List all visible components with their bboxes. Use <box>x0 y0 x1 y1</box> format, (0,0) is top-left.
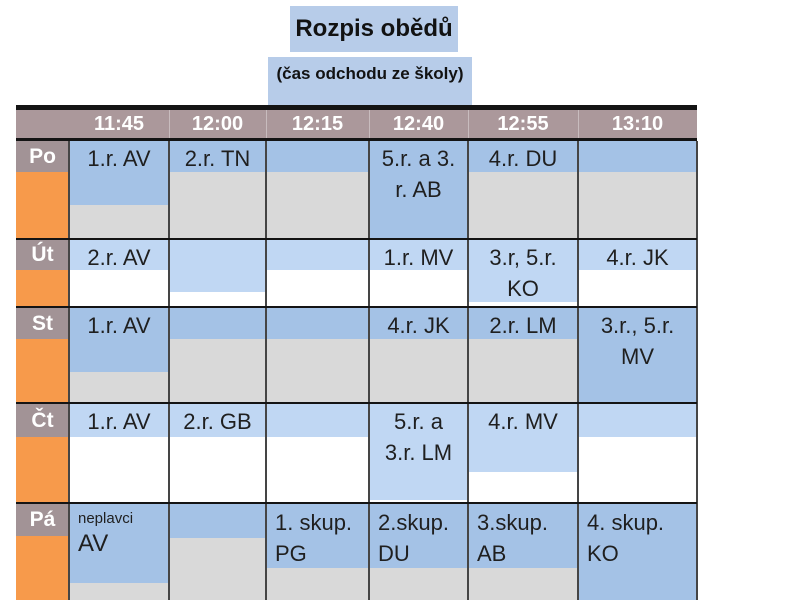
day-label-Út: Út <box>16 240 69 270</box>
cell-line: 1.r. AV <box>69 310 169 341</box>
schedule-cell: 2.r. GB <box>169 404 266 502</box>
column-border <box>467 141 469 600</box>
schedule-cell: 4.r. JK <box>578 240 697 306</box>
cell-line: 4.r. JK <box>578 242 697 273</box>
cell-time-band: 2.r. LM <box>468 308 578 339</box>
cell-time-band: 4.r. MV <box>468 404 578 472</box>
cell-line: KO <box>587 538 697 569</box>
cell-time-band: 3.r., 5.r.MV <box>578 308 697 402</box>
row-separator <box>16 238 697 240</box>
day-column-Pá: Pá <box>16 504 69 600</box>
header-cell-separator <box>468 110 469 138</box>
cell-line: 1.r. MV <box>369 242 468 273</box>
cell-line: 3.skup. <box>477 507 578 538</box>
cell-line: neplavci <box>78 507 169 529</box>
page-subtitle-text: (čas odchodu ze školy) <box>276 64 463 84</box>
schedule-cell: 1. skup.PG <box>266 504 369 600</box>
cell-line: 3.r., 5.r. <box>578 310 697 341</box>
cell-line: 2.skup. <box>378 507 468 538</box>
header-time-11-45: 11:45 <box>69 110 169 138</box>
header-time-12-15: 12:15 <box>266 110 369 138</box>
day-column-St: St <box>16 308 69 402</box>
cell-time-band: 2.skup.DU <box>369 504 468 568</box>
cell-time-band <box>266 404 369 437</box>
row-separator <box>16 502 697 504</box>
cell-line: 3.r. LM <box>369 437 468 468</box>
schedule-cell: 2.r. TN <box>169 141 266 238</box>
schedule-cell <box>578 404 697 502</box>
day-label-Pá: Pá <box>16 504 69 536</box>
cell-line: 4.r. DU <box>468 143 578 174</box>
cell-line: DU <box>378 538 468 569</box>
cell-time-band: 1.r. AV <box>69 404 169 437</box>
row-separator <box>16 402 697 404</box>
schedule-cell: 2.r. AV <box>69 240 169 306</box>
lunch-schedule-page: Rozpis obědů (čas odchodu ze školy) 11:4… <box>0 0 800 600</box>
schedule-cell: 1.r. AV <box>69 141 169 238</box>
header-cell-separator <box>578 110 579 138</box>
schedule-cell: 2.r. LM <box>468 308 578 402</box>
schedule-cell: 2.skup.DU <box>369 504 468 600</box>
cell-time-band: 2.r. AV <box>69 240 169 270</box>
schedule-cell <box>169 240 266 306</box>
schedule-cell: 5.r. a3.r. LM <box>369 404 468 502</box>
cell-line: 2.r. LM <box>468 310 578 341</box>
schedule-cell: 3.skup.AB <box>468 504 578 600</box>
cell-time-band <box>266 308 369 339</box>
header-cell-separator <box>266 110 267 138</box>
cell-time-band: 1.r. AV <box>69 141 169 205</box>
table-header-row: 11:4512:0012:1512:4012:5513:10 <box>16 110 697 138</box>
schedule-cell: 1.r. AV <box>69 308 169 402</box>
schedule-cell: 4.r. JK <box>369 308 468 402</box>
cell-line: KO <box>468 273 578 304</box>
header-cell-separator <box>369 110 370 138</box>
cell-time-band: 1.r. MV <box>369 240 468 270</box>
schedule-cell: 1.r. AV <box>69 404 169 502</box>
cell-line: MV <box>578 341 697 372</box>
cell-line: 1.r. AV <box>69 406 169 437</box>
header-time-12-55: 12:55 <box>468 110 578 138</box>
header-time-12-00: 12:00 <box>169 110 266 138</box>
cell-line: 4.r. JK <box>369 310 468 341</box>
day-label-Po: Po <box>16 141 69 172</box>
cell-time-band: 5.r. a 3.r. AB <box>369 141 468 238</box>
schedule-cell: 3.r., 5.r.MV <box>578 308 697 402</box>
day-label-Čt: Čt <box>16 404 69 437</box>
schedule-cell <box>578 141 697 238</box>
cell-line: 5.r. a 3. <box>369 143 468 174</box>
cell-time-band <box>169 308 266 339</box>
cell-time-band <box>266 240 369 270</box>
cell-line: 2.r. AV <box>69 242 169 273</box>
cell-line: 4.r. MV <box>468 406 578 437</box>
schedule-cell <box>266 141 369 238</box>
day-label-St: St <box>16 308 69 339</box>
cell-time-band: 5.r. a3.r. LM <box>369 404 468 500</box>
cell-time-band <box>169 240 266 292</box>
cell-time-band: 4.r. DU <box>468 141 578 172</box>
day-column-Út: Út <box>16 240 69 306</box>
cell-time-band: 1.r. AV <box>69 308 169 372</box>
header-cell-separator <box>169 110 170 138</box>
cell-time-band: 2.r. TN <box>169 141 266 172</box>
day-column-Po: Po <box>16 141 69 238</box>
cell-line: 2.r. TN <box>169 143 266 174</box>
row-separator <box>16 306 697 308</box>
cell-time-band: 4.r. JK <box>578 240 697 270</box>
cell-time-band <box>578 404 697 437</box>
schedule-cell <box>169 308 266 402</box>
schedule-cell: 3.r, 5.r.KO <box>468 240 578 306</box>
cell-line: PG <box>275 538 369 569</box>
cell-line: 2.r. GB <box>169 406 266 437</box>
schedule-cell <box>169 504 266 600</box>
page-title-text: Rozpis obědů <box>295 15 452 43</box>
schedule-cell: 4.r. MV <box>468 404 578 502</box>
page-subtitle: (čas odchodu ze školy) <box>268 57 472 105</box>
page-title: Rozpis obědů <box>290 6 458 52</box>
cell-time-band: 3.r, 5.r.KO <box>468 240 578 302</box>
cell-time-band <box>169 504 266 538</box>
schedule-cell <box>266 240 369 306</box>
cell-line: 1. skup. <box>275 507 369 538</box>
schedule-cell: 1.r. MV <box>369 240 468 306</box>
cell-time-band: 4. skup.KO <box>578 504 697 600</box>
cell-time-band: 4.r. JK <box>369 308 468 339</box>
cell-line: 4. skup. <box>587 507 697 538</box>
column-border <box>577 141 579 600</box>
cell-line: AV <box>78 529 169 559</box>
cell-time-band: neplavciAV <box>69 504 169 583</box>
cell-time-band: 2.r. GB <box>169 404 266 437</box>
schedule-cell <box>266 308 369 402</box>
schedule-cell: 5.r. a 3.r. AB <box>369 141 468 238</box>
column-border <box>696 141 698 600</box>
cell-time-band: 3.skup.AB <box>468 504 578 568</box>
cell-line: AB <box>477 538 578 569</box>
cell-time-band <box>578 141 697 172</box>
column-border <box>265 141 267 600</box>
schedule-cell: 4. skup.KO <box>578 504 697 600</box>
column-border <box>68 141 70 600</box>
schedule-cell <box>266 404 369 502</box>
header-time-12-40: 12:40 <box>369 110 468 138</box>
column-border <box>168 141 170 600</box>
schedule-cell: 4.r. DU <box>468 141 578 238</box>
cell-line: 3.r, 5.r. <box>468 242 578 273</box>
schedule-cell: neplavciAV <box>69 504 169 600</box>
column-border <box>368 141 370 600</box>
cell-time-band: 1. skup.PG <box>266 504 369 568</box>
cell-line: 1.r. AV <box>69 143 169 174</box>
cell-time-band <box>266 141 369 172</box>
header-time-13-10: 13:10 <box>578 110 697 138</box>
cell-line: r. AB <box>369 174 468 205</box>
day-column-Čt: Čt <box>16 404 69 502</box>
cell-line: 5.r. a <box>369 406 468 437</box>
